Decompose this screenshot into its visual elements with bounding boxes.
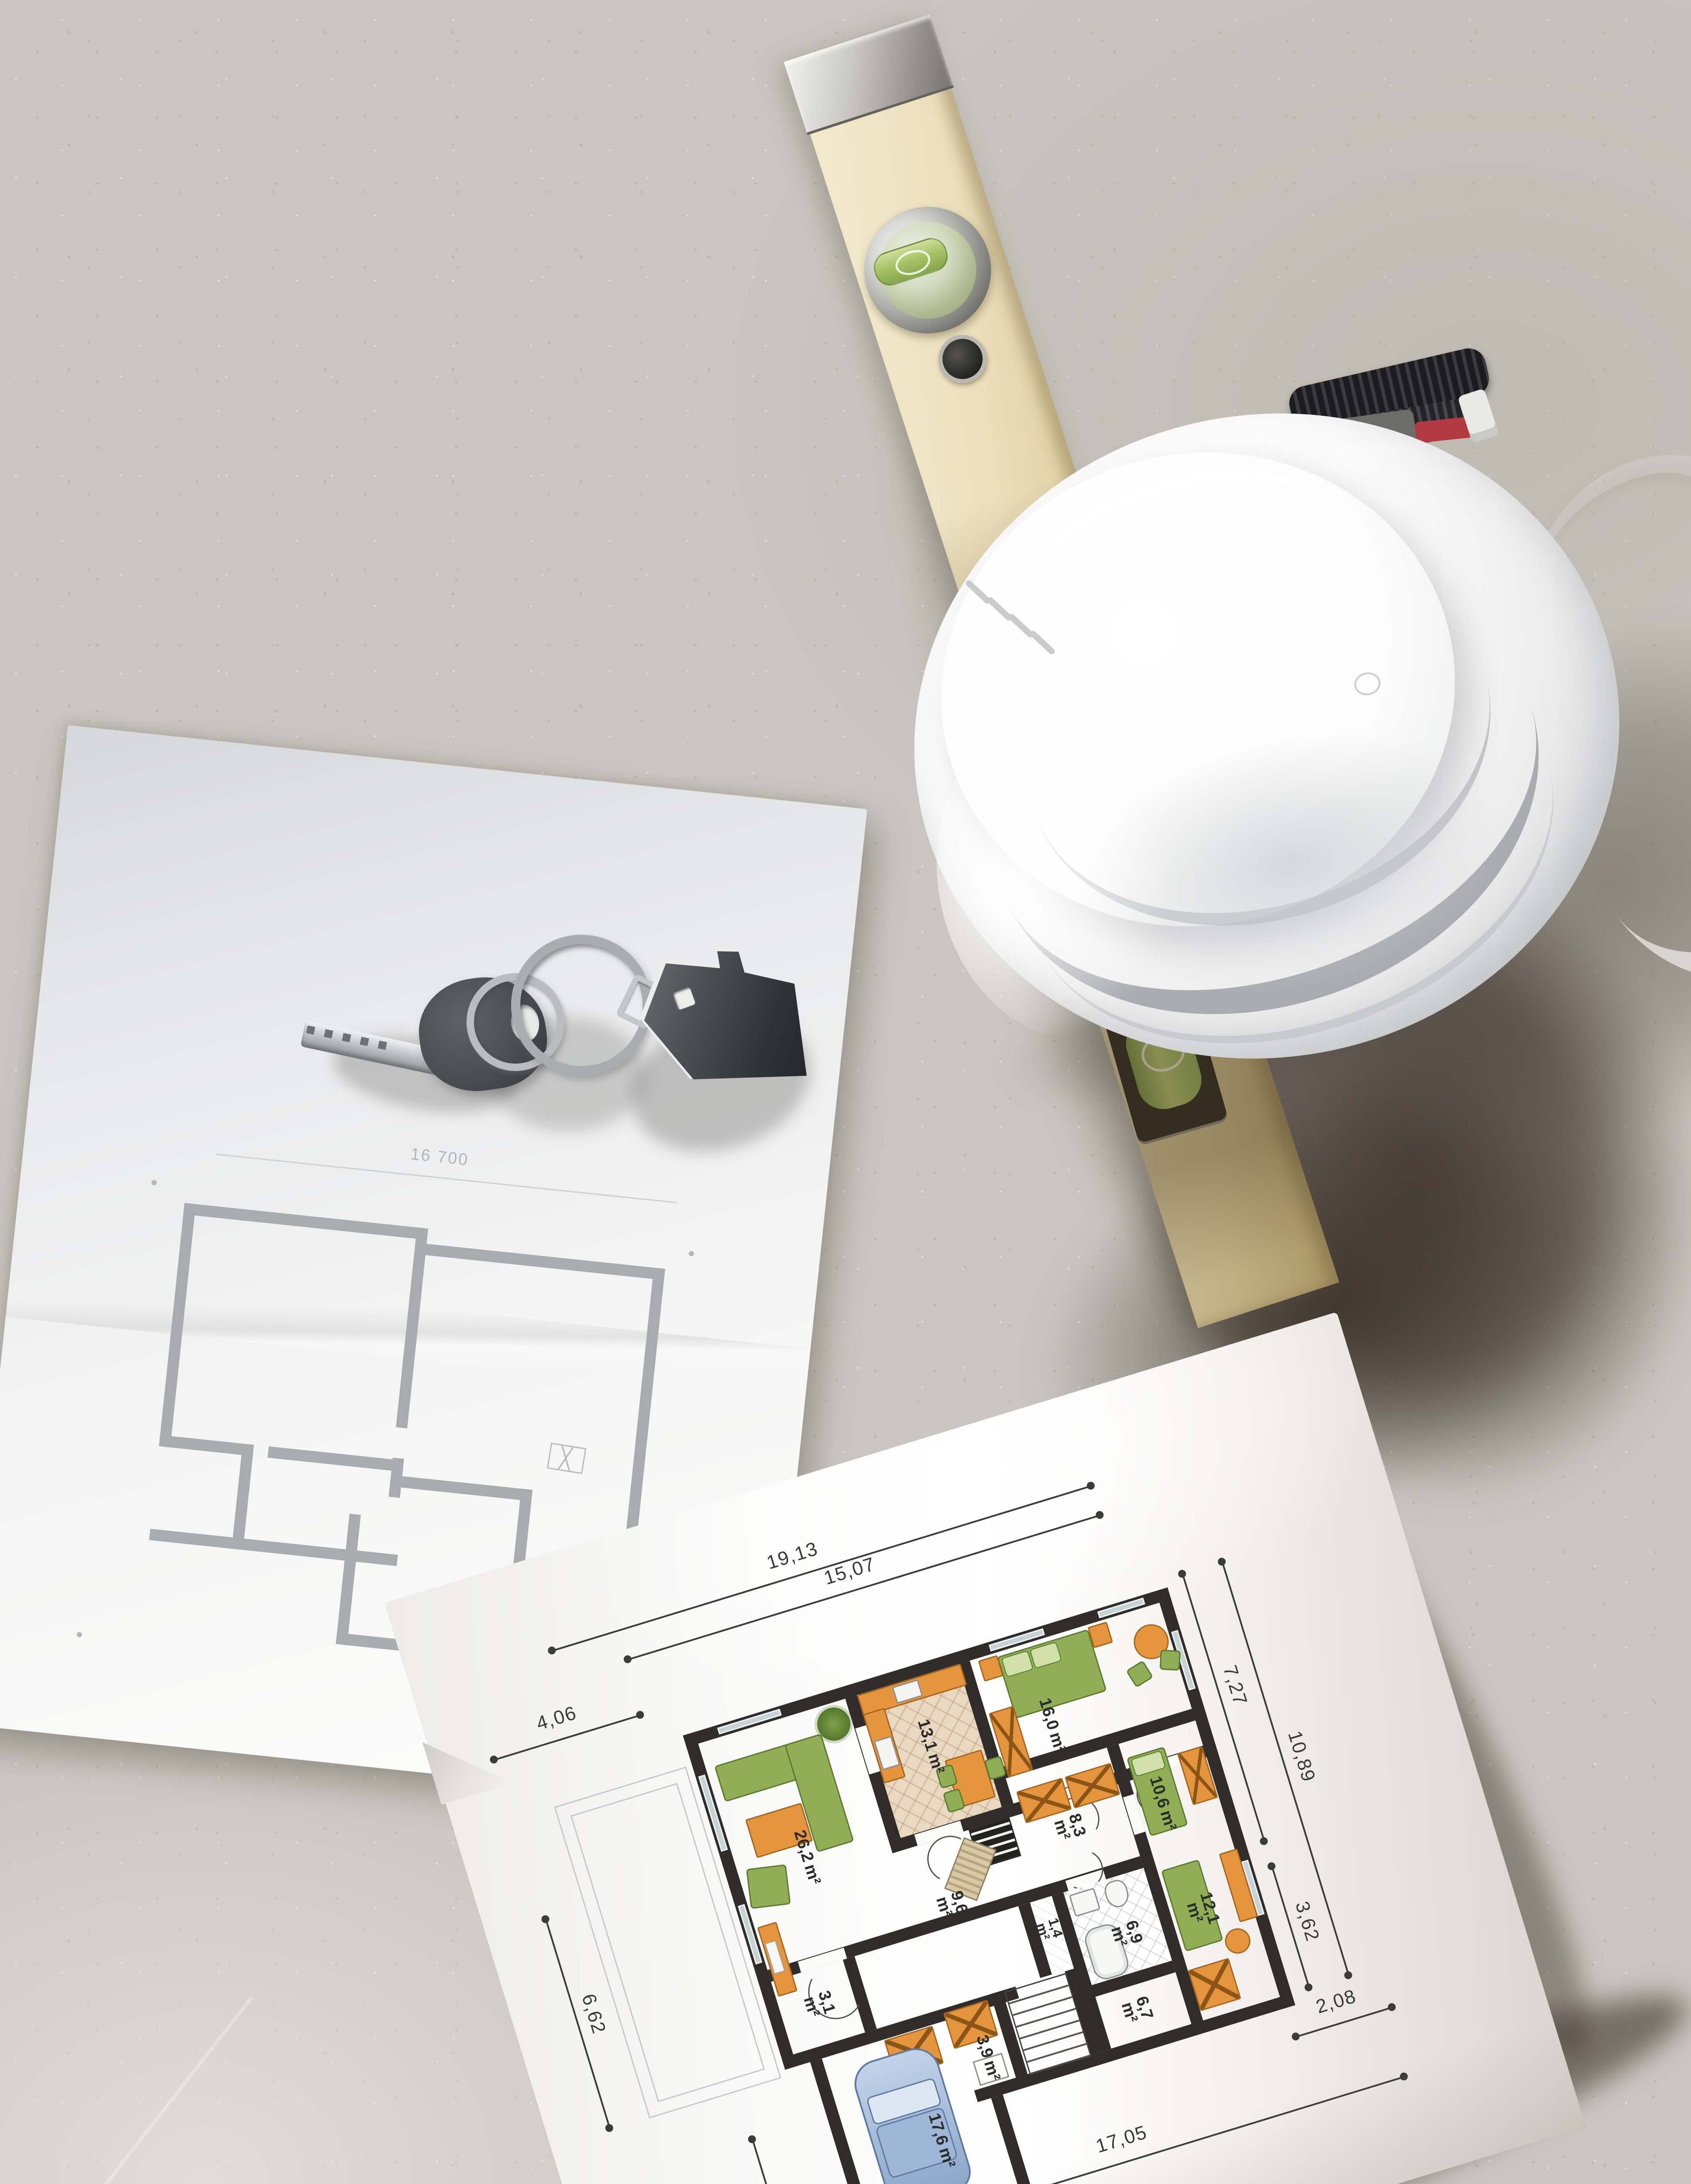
gray-dot [76, 1632, 82, 1638]
gray-wall [183, 1203, 424, 1239]
chair [1126, 1660, 1153, 1688]
ottoman [1222, 1925, 1253, 1956]
gray-dot [151, 1180, 157, 1185]
gray-wall [149, 1529, 398, 1566]
room-area-unit: m² [1034, 1921, 1051, 1942]
chair [1159, 1650, 1180, 1671]
wall [991, 2094, 1034, 2184]
dim-label-right-mid: 3,62 [1291, 1899, 1324, 1944]
room-label-bedroom-main: 16,0m² [1035, 1696, 1069, 1755]
dim-line [1296, 2007, 1392, 2038]
dim-label-bottom-right: 2,08 [1314, 1985, 1359, 2018]
gray-wall [159, 1435, 243, 1455]
gray-wall [336, 1514, 361, 1645]
gray-wall [421, 1243, 665, 1280]
dim-label-left-top: 4,06 [534, 1702, 579, 1735]
dim-label-top-total: 19,13 [764, 1538, 820, 1574]
gray-wall [401, 1476, 533, 1501]
scene: 16 700 Подвал 22,15 [0, 0, 1691, 2184]
dim-label-bottom-left: 4,27 [775, 2180, 807, 2184]
gray-dim-label: 16 700 [409, 1145, 470, 1170]
dim-label-left-main: 6,62 [577, 1991, 610, 2037]
gray-wall [267, 1446, 399, 1471]
gray-stairs-symbol [547, 1443, 586, 1474]
room-area-unit: m² [800, 1862, 824, 1887]
gray-wall [232, 1444, 254, 1549]
concrete-crack [0, 1996, 253, 2184]
gray-dot [688, 1251, 694, 1256]
armchair [746, 1864, 791, 1909]
hall-cabinet [1065, 1763, 1120, 1809]
room-label-mudroom: 6,7m² [1118, 1994, 1155, 2026]
dim-label-right-top: 7,27 [1218, 1663, 1251, 1708]
dim-line [751, 2139, 794, 2184]
